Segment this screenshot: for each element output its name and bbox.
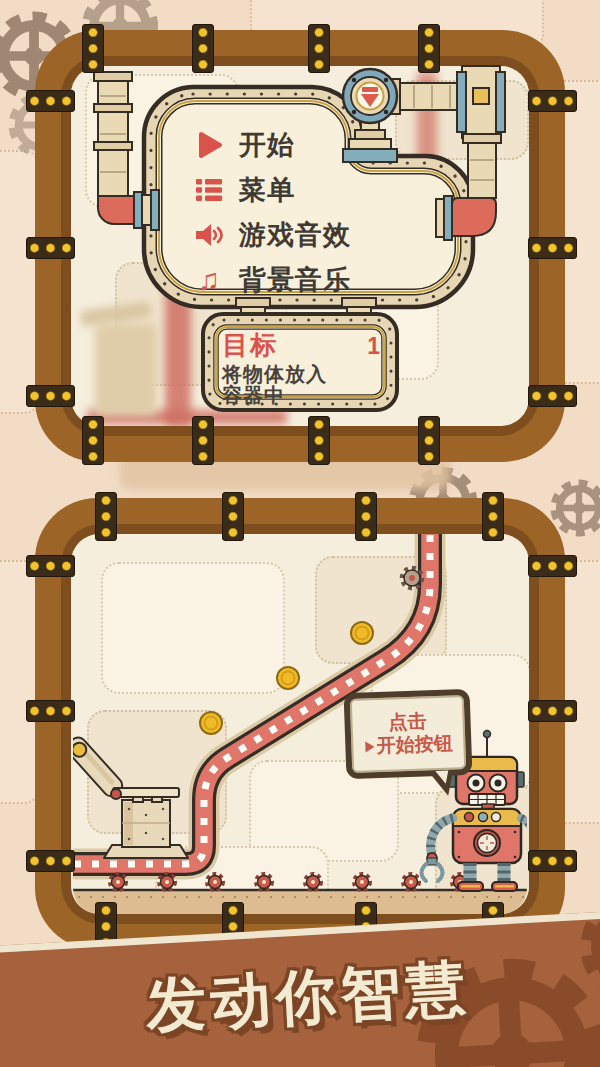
music-icon: ♫ <box>194 265 224 295</box>
frame-clamp <box>308 416 330 465</box>
goal-title: 目标 <box>222 328 278 363</box>
frame-clamp <box>26 90 75 112</box>
goal-panel: 目标 1 将物体放入 容器中 <box>222 328 380 406</box>
goal-count-badge: 1 <box>367 333 380 360</box>
list-icon <box>194 175 224 205</box>
level-panel-frame <box>35 498 565 950</box>
menu-item-label: 开始 <box>239 127 295 163</box>
wall-patch <box>101 562 285 694</box>
goal-description-line2: 容器中 <box>222 385 380 406</box>
frame-clamp <box>82 416 104 465</box>
frame-clamp <box>528 237 577 259</box>
menu-item-label: 游戏音效 <box>239 217 351 253</box>
frame-clamp <box>528 90 577 112</box>
sound-icon <box>194 220 224 250</box>
wall-patch <box>87 710 227 834</box>
game-screen: 开始 菜单 游戏音效 ♫ 背景音乐 <box>0 0 600 1067</box>
goal-description-line1: 将物体放入 <box>222 364 380 385</box>
wall-patch <box>315 556 447 664</box>
frame-clamp <box>192 24 214 73</box>
blurred-container <box>95 324 157 416</box>
gear-icon <box>0 1055 150 1067</box>
menu-item-label: 背景音乐 <box>239 262 351 298</box>
frame-clamp <box>26 700 75 722</box>
frame-clamp <box>482 492 504 541</box>
frame-clamp <box>528 385 577 407</box>
menu-item-label: 菜单 <box>239 172 295 208</box>
wall-patch <box>395 80 529 160</box>
frame-clamp <box>528 700 577 722</box>
bg-plate <box>0 560 40 804</box>
frame-clamp <box>26 385 75 407</box>
frame-clamp <box>26 237 75 259</box>
frame-clamp <box>26 850 75 872</box>
speech-bubble: 点击 开始按钮 <box>344 689 473 779</box>
frame-clamp <box>418 416 440 465</box>
menu-item-sound[interactable]: 游戏音效 <box>194 212 351 257</box>
frame-clamp <box>95 492 117 541</box>
frame-clamp <box>528 555 577 577</box>
frame-clamp <box>355 492 377 541</box>
pointer-icon <box>364 740 375 753</box>
frame-clamp <box>308 24 330 73</box>
blurred-track <box>165 280 191 426</box>
bubble-line2: 开始按钮 <box>377 732 454 757</box>
main-menu: 开始 菜单 游戏音效 ♫ 背景音乐 <box>194 122 351 302</box>
wall-patch <box>435 786 529 910</box>
frame-clamp <box>82 24 104 73</box>
menu-item-menu[interactable]: 菜单 <box>194 167 351 212</box>
frame-clamp <box>418 24 440 73</box>
frame-clamp <box>26 555 75 577</box>
bg-plate <box>0 150 40 414</box>
frame-clamp <box>192 416 214 465</box>
frame-clamp <box>528 850 577 872</box>
blurred-pipe <box>417 72 437 168</box>
menu-item-music[interactable]: ♫ 背景音乐 <box>194 257 351 302</box>
menu-item-start[interactable]: 开始 <box>194 122 351 167</box>
frame-clamp <box>222 492 244 541</box>
play-icon <box>194 130 224 160</box>
bubble-line1: 点击 <box>388 711 427 735</box>
